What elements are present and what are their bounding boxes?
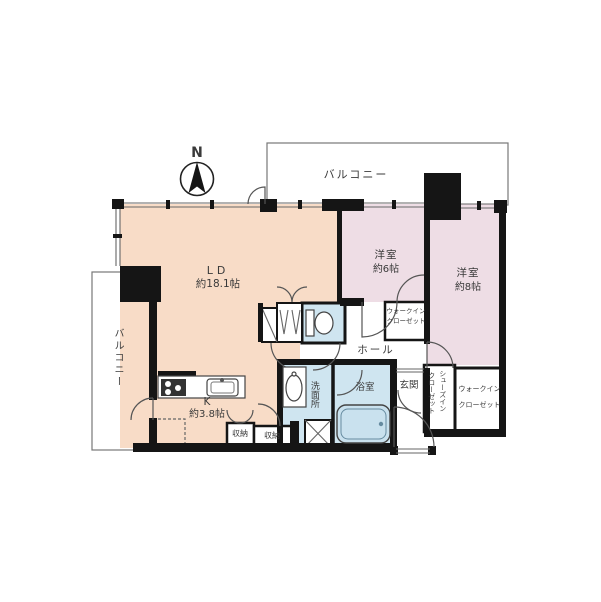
ld-name: LD xyxy=(168,265,268,277)
compass-needle xyxy=(189,162,206,193)
pillar-left xyxy=(120,266,161,302)
wall-corner-topleft xyxy=(112,199,124,209)
balcony-left-label: バルコニー xyxy=(112,328,123,388)
wic8-room xyxy=(455,368,504,432)
wall-entry-cap-right xyxy=(428,446,436,455)
window-tick xyxy=(477,201,481,210)
window-tick xyxy=(392,200,396,209)
wic6-label-line2: クローゼット xyxy=(386,318,426,325)
washroom-label: 洗面所 xyxy=(308,381,318,408)
washbasin-icon xyxy=(283,367,306,407)
bedroom8-name: 洋室 xyxy=(418,268,518,280)
toilet-icon xyxy=(306,310,333,336)
sic-label-line2: クローゼット xyxy=(427,372,435,414)
door-hall-entrance xyxy=(398,390,421,413)
kitchen-name: K xyxy=(157,397,257,409)
window-tick xyxy=(166,200,170,209)
balcony-top-label: バルコニー xyxy=(300,169,412,181)
window-tick xyxy=(298,200,302,209)
entry-threshold xyxy=(396,449,430,453)
kitchen-counter xyxy=(158,376,245,398)
sic-label-line1: シューズイン xyxy=(438,370,446,412)
wic8-label-line1: ウォークイン xyxy=(456,386,503,394)
wall-segment xyxy=(322,199,364,211)
wall-left-mid xyxy=(149,302,157,400)
entrance-step-line xyxy=(396,369,424,372)
compass-icon xyxy=(181,162,214,196)
wall-bottom xyxy=(133,443,396,452)
kitchen-size: 約3.8帖 xyxy=(157,409,257,420)
wall-segment xyxy=(260,199,277,212)
wall-entry-cap-left xyxy=(390,446,398,455)
wall-kitchen-screen xyxy=(158,371,196,376)
wall-bedroom6-hall xyxy=(340,298,364,306)
hall-label: ホール xyxy=(336,345,416,357)
storage1-label: 収納 xyxy=(225,430,255,439)
bedroom6-name: 洋室 xyxy=(336,250,436,262)
storage2-label: 収納 xyxy=(252,432,292,441)
window-tick xyxy=(113,234,122,238)
stove-icon xyxy=(161,379,186,396)
bath-label: 浴室 xyxy=(336,383,394,393)
window-tick xyxy=(210,200,214,209)
bathtub-icon xyxy=(337,405,390,443)
wall-bottom-right xyxy=(424,429,506,437)
compass-north-label: N xyxy=(185,146,209,161)
floor-plan-canvas xyxy=(0,0,601,602)
wic8-label-line2: クローゼット xyxy=(456,402,503,410)
ld-size: 約18.1帖 xyxy=(168,279,268,291)
wic6-label-line1: ウォークイン xyxy=(386,308,426,315)
bedroom8-size: 約8帖 xyxy=(418,282,518,293)
floor-plan: N バルコニー バルコニー LD 約18.1帖 K 約3.8帖 洋室 約6帖 洋… xyxy=(0,0,601,602)
wall-wet-top xyxy=(277,359,397,365)
wall-cabinet-left xyxy=(258,303,263,342)
